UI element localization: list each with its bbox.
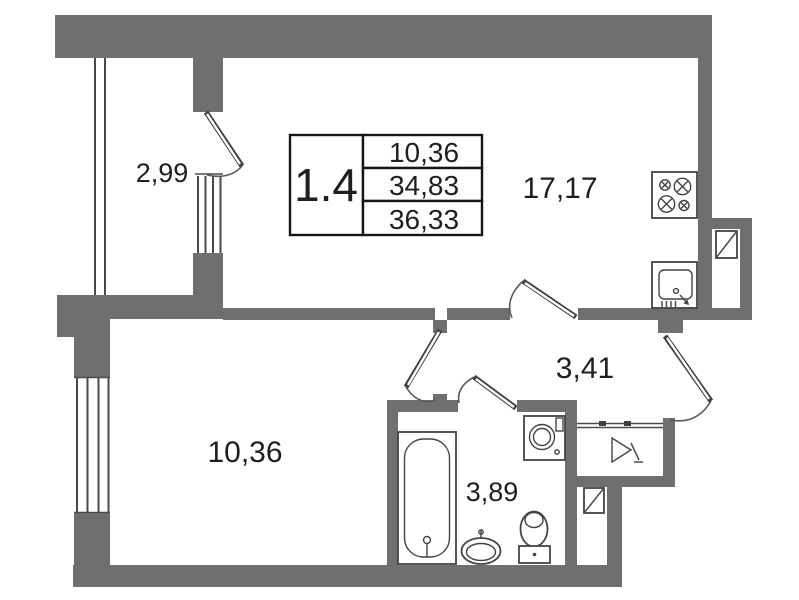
wall-right-upper	[698, 15, 712, 320]
door-arc	[207, 166, 242, 176]
wall-bottom	[73, 565, 622, 587]
wall-bath-top-left	[387, 400, 458, 412]
unit-number: 1.4	[294, 159, 358, 211]
entry-triangle	[612, 438, 631, 462]
stove-body	[652, 172, 697, 218]
balcony-door	[206, 112, 242, 176]
room-door	[406, 330, 440, 401]
room-window	[74, 377, 110, 513]
washing-machine-icon	[524, 416, 565, 460]
toilet-tank-button	[533, 553, 537, 557]
wall-shaft-right	[740, 218, 752, 320]
shelf-tick	[624, 421, 631, 426]
door-leaf	[207, 114, 240, 164]
wall-niche-bottom	[572, 476, 675, 487]
wall-bath-door-jamb	[433, 394, 447, 404]
balcony-glazing	[95, 58, 105, 295]
title-block: 1.4 10,36 34,83 36,33	[290, 135, 482, 235]
door-leaf	[476, 379, 514, 407]
bathroom-door	[459, 377, 516, 408]
door-leaf	[525, 283, 574, 316]
kitchen-sink-icon	[652, 262, 697, 308]
bathtub-icon	[398, 432, 456, 564]
wall-window-pier-upper	[74, 347, 110, 377]
niche-shelf	[577, 421, 663, 428]
ventilation-shaft-icon	[716, 231, 737, 258]
area-apartment: 34,83	[389, 170, 459, 201]
door-arc	[510, 281, 523, 318]
entry-marker-icon	[612, 438, 643, 462]
area-living: 10,36	[389, 137, 459, 168]
toilet-bowl	[521, 512, 548, 547]
washbasin-icon	[462, 530, 501, 564]
entry-stem	[631, 443, 639, 460]
wall-entrance-jamb	[658, 320, 683, 333]
room-label-hallway: 3,41	[556, 352, 614, 385]
room-label-room: 10,36	[207, 436, 282, 469]
shelf-tick	[599, 421, 606, 426]
area-total: 36,33	[389, 204, 459, 235]
entrance-door	[665, 336, 711, 421]
living-room-door	[510, 281, 576, 318]
toilet-icon	[519, 512, 550, 564]
wall-mid-a	[223, 308, 435, 320]
room-label-bathroom: 3,89	[466, 477, 519, 507]
ventilation-shaft-icon	[584, 488, 604, 513]
floor-plan: 1.4 10,36 34,83 36,33 2,99 17,17 3,41 10…	[0, 0, 799, 600]
wall-mid-left	[57, 295, 223, 319]
balcony-window	[195, 174, 223, 253]
wall-window-pier-lower	[74, 513, 110, 567]
stove-icon	[652, 172, 697, 218]
wall-left-step	[74, 337, 110, 347]
door-leaf	[667, 338, 709, 399]
room-label-balcony: 2,99	[136, 158, 189, 188]
room-label-living: 17,17	[522, 172, 597, 205]
wall-left-corner	[57, 319, 110, 337]
wall-top	[55, 15, 712, 58]
door-arc	[670, 401, 711, 421]
floor-plan-drawing: 1.4 10,36 34,83 36,33 2,99 17,17 3,41 10…	[0, 0, 799, 600]
wall-balcony-pier-top	[193, 58, 223, 112]
door-arc	[406, 387, 436, 401]
wall-mid-b	[447, 308, 510, 320]
wall-bath-left	[387, 400, 398, 565]
wall-shaft2-right	[607, 487, 622, 567]
wall-shaft-bottom	[712, 308, 752, 320]
wall-mid-c	[578, 308, 712, 320]
door-arc	[459, 377, 474, 403]
door-leaf	[408, 332, 439, 385]
